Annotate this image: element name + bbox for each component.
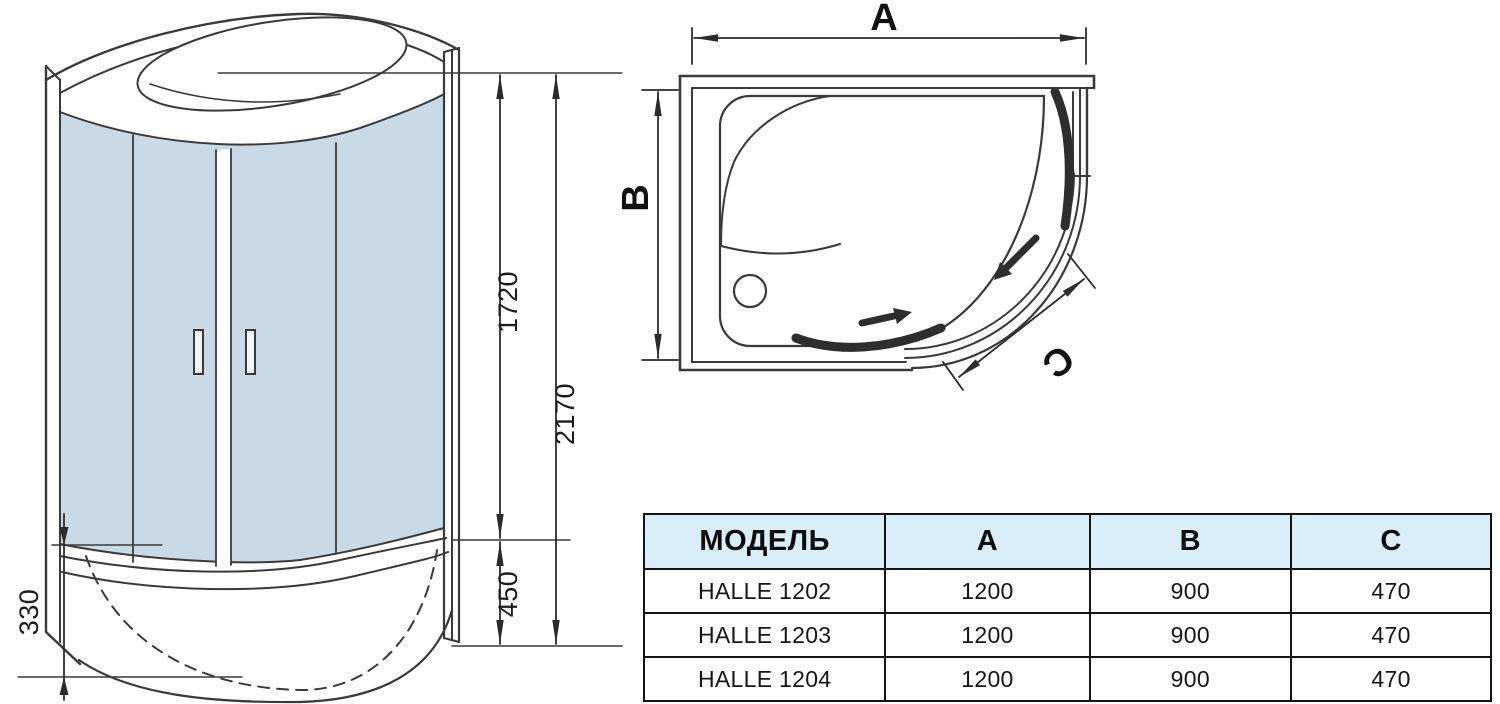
plan-wall-profiles	[680, 76, 1094, 370]
table-cell: 470	[1291, 613, 1491, 657]
table-cell: 1200	[885, 613, 1089, 657]
technical-drawing-page: 1720 2170 450 330	[0, 0, 1500, 704]
table-cell: 900	[1090, 657, 1292, 701]
drain-hole	[734, 275, 766, 307]
dim-text-330: 330	[14, 589, 44, 636]
door-arc-right	[1055, 92, 1069, 226]
header-c: C	[1291, 514, 1491, 569]
dim-label-A: A	[870, 0, 897, 39]
model-spec-table: МОДЕЛЬ A B C HALLE 12021200900470HALLE 1…	[643, 513, 1492, 702]
door-handle-right	[246, 330, 255, 374]
table-cell: 1200	[885, 569, 1089, 613]
spec-table-body: HALLE 12021200900470HALLE 12031200900470…	[644, 569, 1491, 701]
table-row: HALLE 12041200900470	[644, 657, 1491, 701]
dim-text-450: 450	[493, 571, 523, 618]
dim-label-B: B	[615, 184, 657, 211]
door-handle-left	[194, 330, 203, 374]
roof-dome	[131, 1, 413, 127]
dim-label-C: C	[1034, 336, 1082, 386]
dim-B	[642, 90, 678, 360]
table-cell: 900	[1090, 613, 1292, 657]
plan-curved-track	[905, 173, 1087, 368]
glass-panels	[60, 94, 444, 562]
dim-text-2170: 2170	[550, 383, 580, 445]
plan-view: A B C	[615, 0, 1095, 390]
plan-dome-outline	[721, 96, 840, 254]
table-cell: HALLE 1203	[644, 613, 885, 657]
header-model: МОДЕЛЬ	[644, 514, 885, 569]
table-cell: 470	[1291, 657, 1491, 701]
front-view: 1720 2170 450 330	[14, 1, 622, 702]
header-b: B	[1090, 514, 1292, 569]
header-a: A	[885, 514, 1089, 569]
table-cell: HALLE 1202	[644, 569, 885, 613]
roof	[46, 1, 459, 127]
sliding-door-arcs	[796, 92, 1069, 347]
dim-text-1720: 1720	[493, 271, 523, 333]
door-arc-bottom	[796, 328, 941, 347]
plan-tray-outline	[720, 96, 1044, 346]
table-cell: 900	[1090, 569, 1292, 613]
spec-table-header-row: МОДЕЛЬ A B C	[644, 514, 1491, 569]
table-cell: 470	[1291, 569, 1491, 613]
table-cell: HALLE 1204	[644, 657, 885, 701]
table-cell: 1200	[885, 657, 1089, 701]
table-row: HALLE 12021200900470	[644, 569, 1491, 613]
table-row: HALLE 12031200900470	[644, 613, 1491, 657]
door-gap	[216, 149, 231, 566]
